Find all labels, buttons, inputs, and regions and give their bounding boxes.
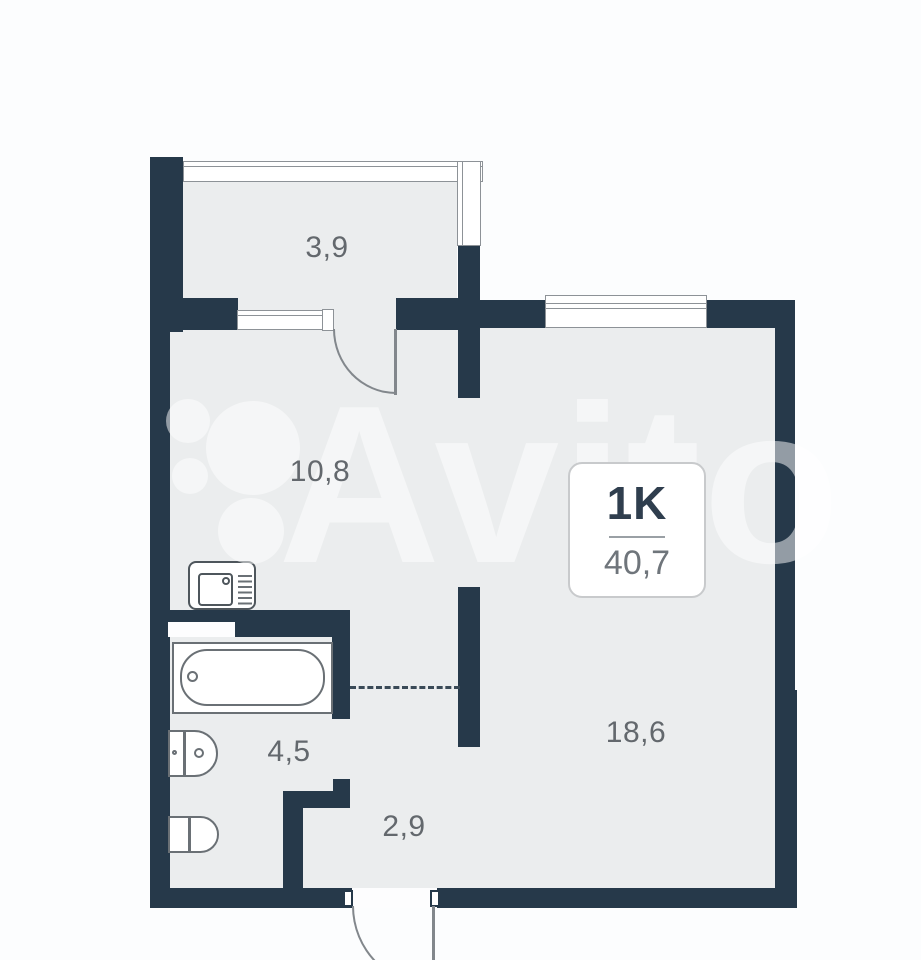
dashed-partition-line [350, 686, 460, 689]
avito-watermark-text: Avito [278, 372, 842, 597]
sink-drainboard [238, 575, 252, 605]
glazing-frame-line [462, 162, 463, 245]
window-main-room [545, 295, 707, 328]
wall-divider-lower [458, 587, 480, 747]
toilet-dot [194, 748, 204, 758]
kitchen-sink-icon [188, 561, 256, 610]
hallway-area-label: 2,9 [382, 810, 425, 844]
wall-balcony-right-of-door [396, 298, 458, 330]
total-area-label: 40,7 [604, 546, 670, 580]
bathtub-icon [172, 642, 333, 714]
glazing-frame-line [184, 166, 482, 167]
wall-hallway-tab [333, 779, 350, 808]
window-kitchen-balcony [237, 310, 333, 330]
window-frame-line [546, 308, 706, 309]
bathroom-area-label: 4,5 [267, 735, 310, 769]
balcony-doorway-floor [333, 296, 396, 330]
wall-room-top-left [478, 300, 547, 328]
entrance-door-arc [352, 906, 433, 960]
unit-info-card: 1K 40,7 [568, 462, 706, 598]
floor-plan: Avito 3,9 10,8 18,6 4,5 2,9 1K 40,7 [0, 0, 921, 960]
balcony-glazing-top [183, 161, 483, 182]
wall-bottom-right [437, 888, 795, 908]
sink-faucet-dot [222, 577, 230, 585]
entrance-door-jamb-left [343, 890, 353, 907]
main-room-area-label: 18,6 [606, 716, 666, 750]
wall-right-step [793, 690, 797, 908]
wall-room-top-right [705, 300, 777, 328]
entrance-door-leaf [432, 906, 435, 960]
bathroom-door-opening [168, 622, 235, 637]
bathtub-drain [187, 671, 198, 682]
toilet-tank-dot [172, 750, 177, 755]
wall-bathroom-right [332, 632, 350, 719]
balcony-area-label: 3,9 [305, 231, 348, 265]
entrance-door-jamb-right [430, 890, 440, 907]
wall-bottom-left [150, 888, 352, 908]
bathtub-inner [180, 649, 325, 706]
avito-logo-circle [218, 498, 284, 564]
balcony-glazing-right [457, 161, 481, 246]
card-divider [609, 536, 665, 538]
window-frame-line [238, 315, 332, 316]
window-frame-line [546, 303, 706, 304]
washbasin-tank [168, 816, 190, 853]
avito-logo-circle [166, 399, 210, 443]
window-jamb [322, 309, 334, 331]
avito-logo-circle [172, 458, 208, 494]
unit-type-label: 1K [607, 480, 668, 526]
kitchen-area-label: 10,8 [290, 455, 350, 489]
entrance-opening [352, 888, 437, 908]
wall-balcony-stub-left [168, 298, 238, 330]
